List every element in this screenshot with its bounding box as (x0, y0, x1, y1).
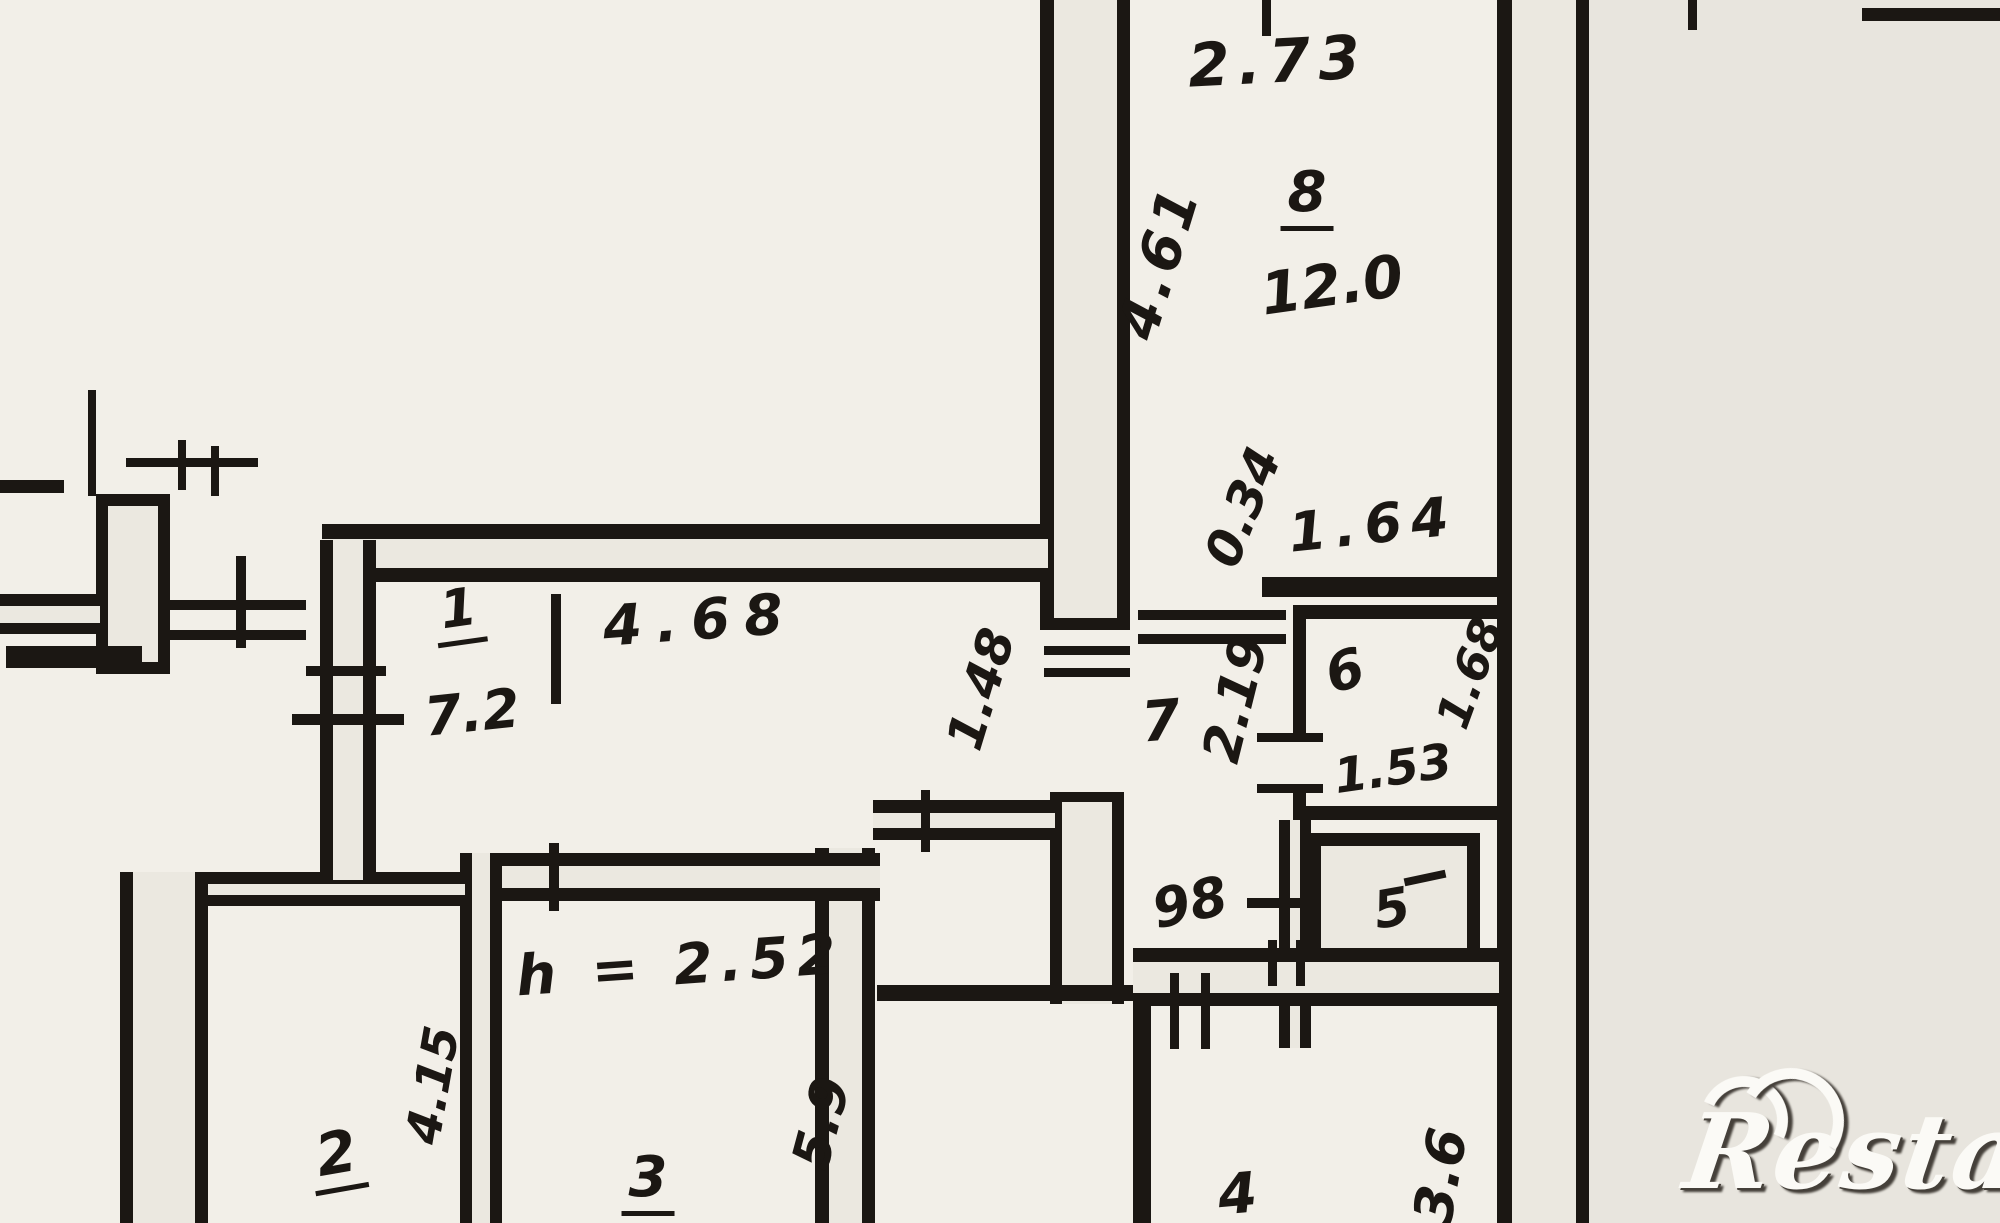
dim-room6-width: 1.53 (1331, 737, 1455, 801)
top-right-edge-line (1862, 8, 2000, 21)
balcony-dim-tick-2 (211, 446, 219, 496)
hall7-partition-wall (1279, 820, 1311, 1048)
balcony-wall-lower (6, 646, 142, 668)
room4-top-wall (1133, 948, 1499, 1006)
room3-top-wall (460, 853, 880, 901)
hall1-left-wall (320, 540, 376, 880)
room6-left-wall-upper (1293, 605, 1306, 737)
hall-bottom-wall (873, 800, 1055, 840)
balcony-dim-line (126, 458, 258, 467)
dim-room8-width: 2.73 (1187, 27, 1370, 96)
room4-wall-tick-1 (1170, 973, 1179, 1049)
hall1-left-wall-tick-1 (306, 666, 386, 676)
hall-bottom-wall-tick (921, 790, 930, 852)
room2-number: 2 (304, 1120, 369, 1196)
room4-door-jamb-1 (1268, 940, 1277, 986)
dim-opening-164: 1.64 (1286, 489, 1460, 560)
room8-door-jamb-1 (1138, 610, 1286, 620)
room4-number: 4 (1209, 1165, 1268, 1223)
room7-number: 7 (1139, 692, 1183, 751)
hall1-dimension-tick (551, 594, 561, 704)
outside-paper-strip (1589, 0, 2000, 1223)
hall-door-jamb-1 (1044, 646, 1130, 655)
dim-room2-depth: 4.15 (399, 1023, 467, 1148)
balcony-dim-tick-1 (178, 440, 186, 490)
dim-hall7-door: 98 (1148, 869, 1233, 937)
balcony-door-tick (236, 556, 246, 648)
dim-opening-034: 0.34 (1197, 440, 1290, 573)
hall1-top-wall (322, 524, 1048, 582)
room6-door-tick-1 (1257, 733, 1323, 742)
room3-height-note: h = 2.52 (514, 927, 845, 1006)
dim-hall1-depth: 1.48 (939, 623, 1023, 756)
hall-door-jamb-2 (1044, 668, 1130, 677)
room4-top-wall-left (877, 985, 1139, 1001)
room8-bottom-wall (1262, 577, 1502, 597)
floor-plan-canvas: 2.73 8 12.0 4.61 0.34 1.64 6 1.53 1.68 7… (0, 0, 2000, 1223)
outer-wall-top-tick (1688, 0, 1697, 30)
room8-number: 8 (1281, 165, 1334, 231)
hall1-left-wall-tick-2 (292, 714, 404, 725)
dim-room4-depth: 3.6 (1406, 1124, 1476, 1223)
hall-wall-lower (1050, 792, 1124, 1004)
room6-number: 6 (1320, 640, 1370, 702)
room1-area: 7.2 (422, 681, 523, 745)
room2-left-wall (120, 872, 208, 1223)
room6-door-tick-2 (1257, 784, 1323, 793)
room6-bottom-wall (1293, 806, 1505, 820)
balcony-rail-line (88, 390, 96, 496)
room3-top-wall-tick (549, 843, 559, 911)
room4-left-wall (1133, 1004, 1151, 1223)
room4-wall-tick-2 (1201, 973, 1210, 1049)
dim-hall7-depth: 2.19 (1195, 630, 1276, 767)
room4-door-jamb-2 (1296, 940, 1305, 986)
outer-wall-right (1497, 0, 1589, 1223)
room3-number: 3 (622, 1150, 675, 1216)
left-edge-tick (0, 480, 64, 493)
dim-hall1-width: 4.68 (601, 586, 799, 655)
balcony-wall-upper (0, 594, 100, 634)
room1-number: 1 (430, 580, 488, 648)
room8-area: 12.0 (1257, 246, 1407, 323)
